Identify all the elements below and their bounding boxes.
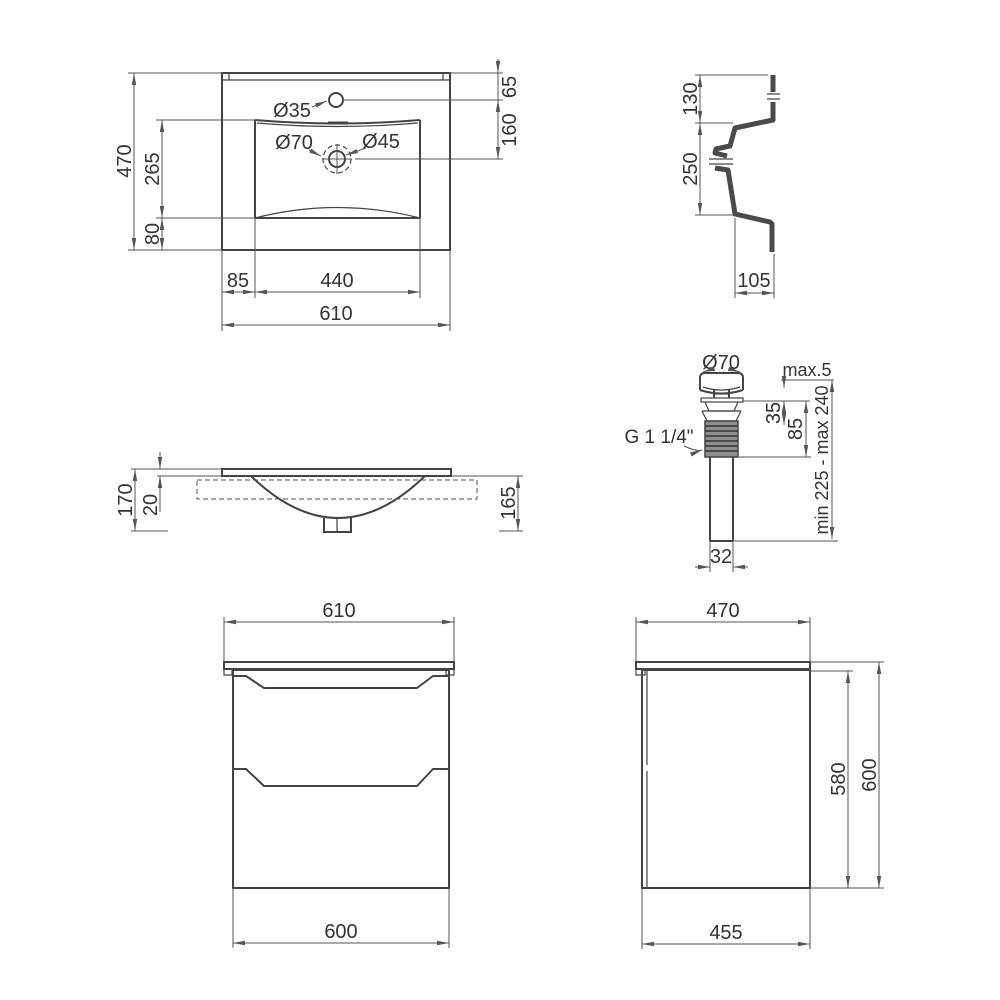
dim-label-170: 170 (115, 483, 137, 516)
technical-drawing-sheet: 470 265 80 85 440 610 65 160 Ø35 Ø70 Ø45… (0, 0, 1000, 1000)
view-drain-valve: Ø70 max.5 35 85 min 225 - max 240 32 G 1… (624, 352, 838, 572)
label-faucet-diameter: Ø35 (273, 100, 311, 122)
dim-label-470: 470 (114, 144, 136, 177)
label-drain-inner: Ø45 (362, 131, 400, 153)
dim-label-130: 130 (680, 82, 702, 115)
valve-lower-ring (702, 411, 741, 421)
leader-faucet (312, 101, 327, 107)
dim-label-105: 105 (737, 270, 770, 292)
deck-band-ticks (229, 73, 443, 80)
dim-label-165: 165 (498, 486, 520, 519)
section-deck-and-front (715, 102, 773, 156)
deck-front-band (222, 469, 451, 476)
view-washbasin-section: 130 250 105 (680, 75, 780, 298)
dim-label-580: 580 (828, 762, 850, 795)
drawer2-handle-recess (233, 769, 449, 786)
valve-upper-ring (705, 402, 738, 411)
ext-lines-front-view (131, 469, 523, 531)
dim-label-610: 610 (319, 303, 352, 325)
dim-label-470-cabinet: 470 (706, 600, 739, 622)
valve-tailpipe (710, 457, 733, 541)
dim-label-80: 80 (142, 223, 164, 245)
dim-label-32: 32 (710, 546, 732, 568)
cabinet-body-front (233, 670, 449, 888)
dim-label-max5: max.5 (782, 360, 831, 380)
cabinet-body-side (642, 670, 810, 888)
view-washbasin-front: 170 20 165 (115, 452, 523, 532)
faucet-hole (329, 93, 343, 107)
ext-lines-side-top (636, 617, 810, 662)
view-washbasin-top: 470 265 80 85 440 610 65 160 Ø35 Ø70 Ø45 (114, 59, 521, 331)
drawing-svg: 470 265 80 85 440 610 65 160 Ø35 Ø70 Ø45… (0, 0, 1000, 1000)
view-cabinet-front: 610 600 (224, 600, 454, 948)
dim-label-455: 455 (709, 922, 742, 944)
basin-bottom-curve (255, 208, 420, 219)
dim-label-265: 265 (142, 152, 164, 185)
countertop-front (224, 662, 454, 669)
dim-label-65: 65 (499, 76, 521, 98)
dim-label-440: 440 (320, 270, 353, 292)
drain-centerlines (322, 144, 352, 174)
dim-label-minmax: min 225 - max 240 (812, 385, 832, 534)
hidden-cabinet-top (197, 480, 477, 499)
dim-label-35: 35 (763, 402, 785, 424)
valve-flange-plate (701, 398, 743, 402)
dim-label-600-side: 600 (859, 758, 881, 791)
label-drain-outer: Ø70 (275, 132, 313, 154)
dim-label-85-valve: 85 (785, 418, 807, 440)
countertop-side (636, 662, 810, 669)
valve-cap-inner-arc (703, 387, 740, 390)
dim-label-250: 250 (680, 152, 702, 185)
dim-label-85: 85 (227, 270, 249, 292)
label-thread-size: G 1 1/4" (624, 427, 693, 448)
dim-label-20: 20 (140, 494, 162, 516)
section-bowl-bottom (715, 168, 772, 252)
dim-label-600-cabinet: 600 (324, 921, 357, 943)
bowl-front-curve (251, 476, 425, 518)
view-cabinet-side: 470 455 580 600 (636, 600, 884, 949)
drawer1-handle-recess (233, 676, 449, 688)
dim-label-610-cabinet: 610 (322, 600, 355, 622)
dim-label-160: 160 (499, 113, 521, 146)
